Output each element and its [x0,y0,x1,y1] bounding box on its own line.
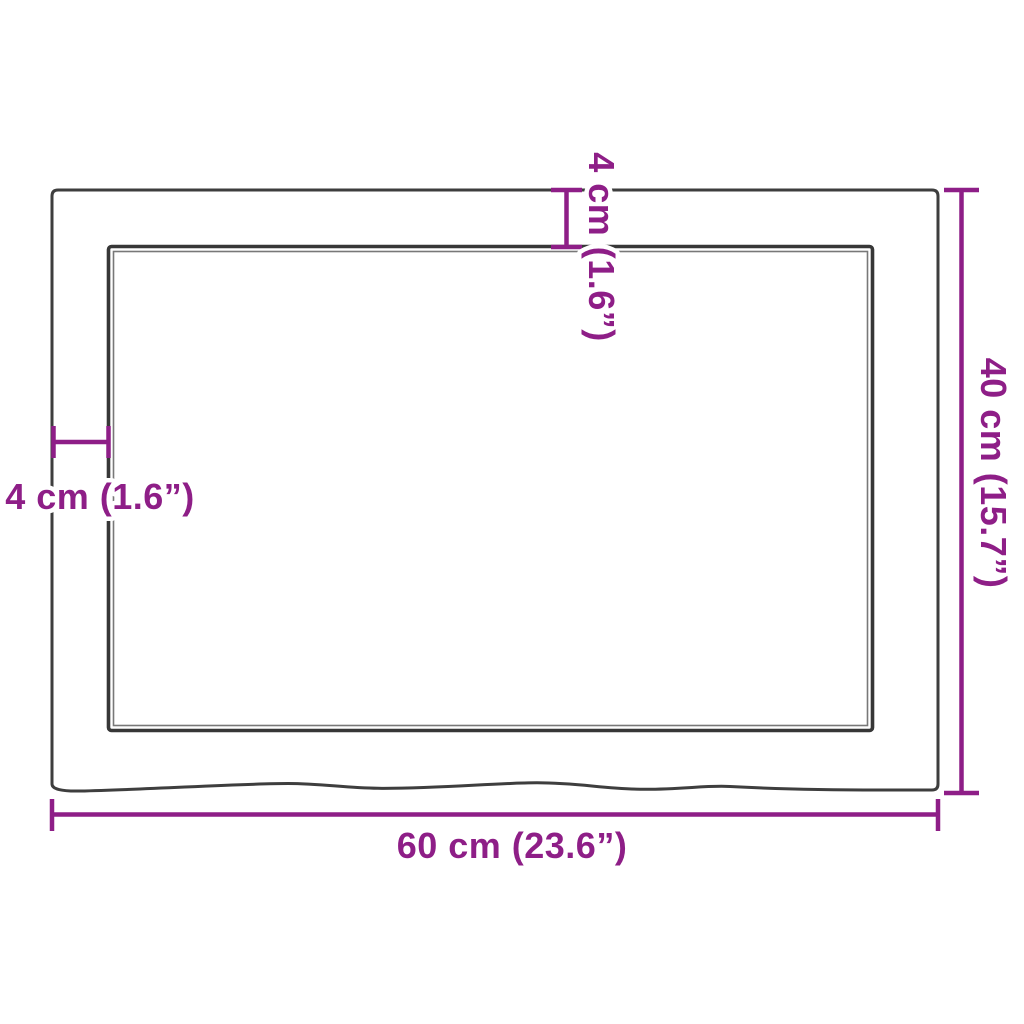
width-dimension-label: 60 cm (23.6”) [397,825,628,866]
dimension-diagram-page: 40 cm (15.7”) 60 cm (23.6”) 4 cm (1.6”) … [0,0,1024,1024]
side-edge-thickness-label: 4 cm (1.6”) [5,476,195,517]
panel-inner-outline [109,247,873,731]
dimension-diagram: 40 cm (15.7”) 60 cm (23.6”) 4 cm (1.6”) … [0,0,1024,1024]
height-dimension-label: 40 cm (15.7”) [973,358,1014,589]
width-dimension: 60 cm (23.6”) [52,799,938,866]
top-edge-thickness-label: 4 cm (1.6”) [581,152,622,342]
height-dimension: 40 cm (15.7”) [944,190,1014,793]
